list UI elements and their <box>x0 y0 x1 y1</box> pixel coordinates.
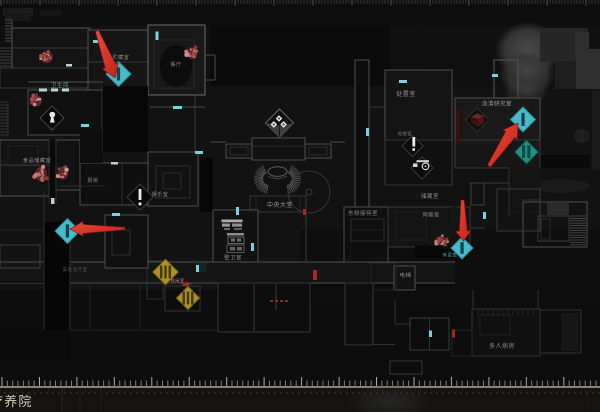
svg-text:安息治疗室: 安息治疗室 <box>63 266 88 273</box>
svg-text:中央大堂: 中央大堂 <box>267 201 293 209</box>
svg-text:餐厅: 餐厅 <box>170 61 181 68</box>
svg-text:血清研究室: 血清研究室 <box>482 100 512 108</box>
svg-text:厨房: 厨房 <box>87 177 98 184</box>
svg-text:贮藏室: 贮藏室 <box>113 54 130 61</box>
svg-text:多人病房: 多人病房 <box>489 342 515 350</box>
svg-text:电梯: 电梯 <box>399 271 411 279</box>
svg-text:东侧接待室: 东侧接待室 <box>348 209 378 217</box>
svg-text:休闲室: 休闲室 <box>170 277 184 284</box>
svg-text:疗养院: 疗养院 <box>0 394 33 409</box>
svg-text:处置室: 处置室 <box>396 90 416 98</box>
svg-text:食品储藏室: 食品储藏室 <box>23 156 51 164</box>
svg-text:检想室: 检想室 <box>398 130 412 137</box>
svg-text:娱乐室: 娱乐室 <box>152 191 169 198</box>
svg-text:储藏室: 储藏室 <box>421 192 439 200</box>
svg-text:骨骼室: 骨骼室 <box>422 211 439 219</box>
svg-text:卫生间: 卫生间 <box>51 81 69 89</box>
svg-text:警卫室: 警卫室 <box>224 254 242 262</box>
